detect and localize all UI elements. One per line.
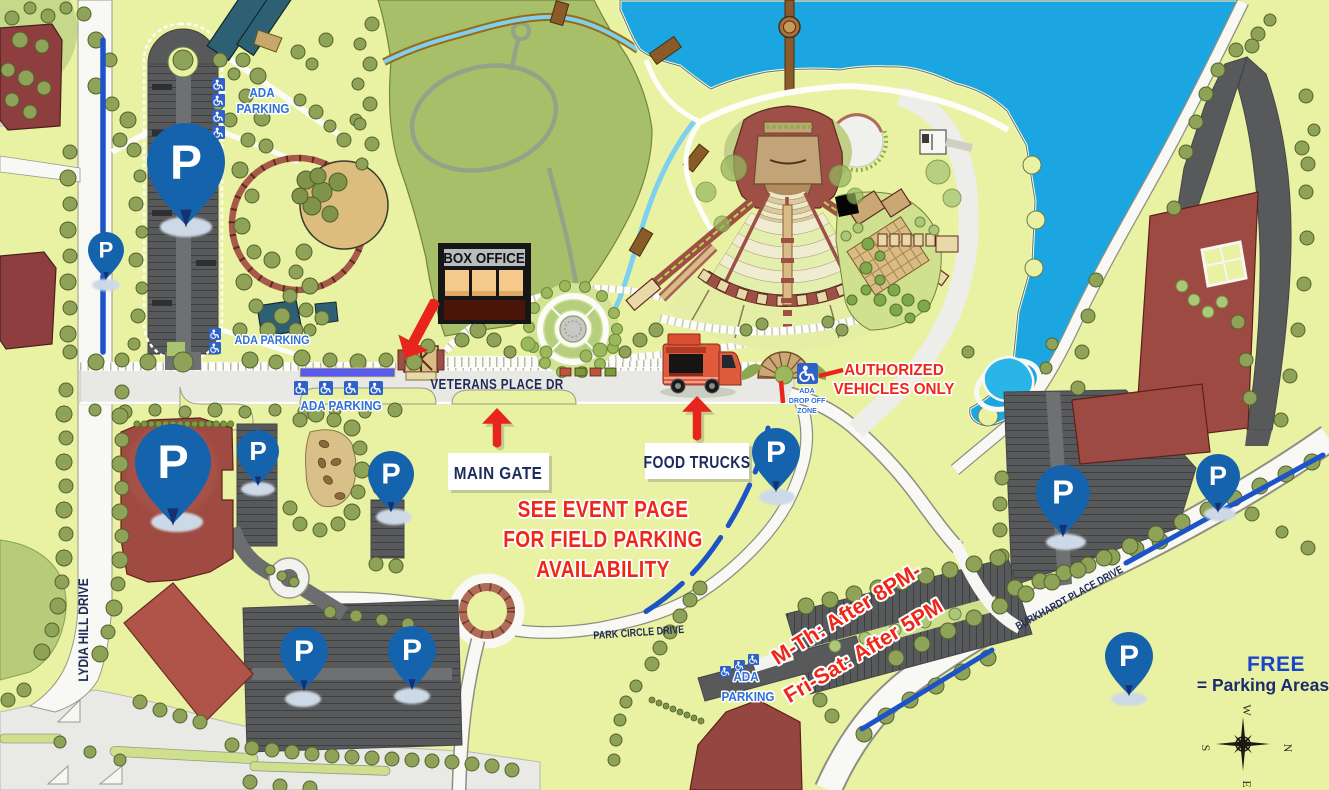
svg-text:E: E: [1240, 780, 1254, 787]
svg-text:ADA PARKING: ADA PARKING: [235, 335, 310, 348]
svg-text:PARKING: PARKING: [721, 689, 774, 704]
svg-text:PARKING: PARKING: [236, 101, 289, 116]
svg-text:P: P: [249, 436, 266, 466]
svg-text:ADA: ADA: [733, 669, 758, 684]
svg-text:LYDIA HILL DRIVE: LYDIA HILL DRIVE: [75, 578, 91, 682]
svg-text:W: W: [1240, 704, 1254, 716]
svg-text:P: P: [1052, 473, 1074, 510]
svg-text:P: P: [766, 436, 786, 469]
svg-text:P: P: [1209, 461, 1227, 491]
svg-text:S: S: [1199, 745, 1213, 752]
svg-text:SEE EVENT PAGE: SEE EVENT PAGE: [518, 497, 689, 522]
svg-text:AVAILABILITY: AVAILABILITY: [536, 557, 670, 582]
svg-text:P: P: [170, 136, 202, 189]
svg-text:ZONE: ZONE: [797, 406, 817, 415]
svg-text:FREE: FREE: [1247, 653, 1305, 676]
svg-text:ADA: ADA: [249, 85, 274, 100]
svg-text:N: N: [1281, 744, 1295, 753]
svg-text:P: P: [294, 635, 314, 668]
svg-text:FOR FIELD PARKING: FOR FIELD PARKING: [503, 527, 703, 552]
svg-text:P: P: [1119, 640, 1139, 673]
svg-text:VETERANS PLACE DR: VETERANS PLACE DR: [430, 376, 563, 393]
svg-text:P: P: [381, 459, 400, 491]
svg-text:FOOD TRUCKS: FOOD TRUCKS: [644, 454, 751, 473]
svg-text:BOX OFFICE: BOX OFFICE: [443, 249, 524, 266]
svg-text:MAIN GATE: MAIN GATE: [454, 463, 542, 483]
svg-text:P: P: [402, 634, 422, 667]
svg-text:ADA: ADA: [799, 386, 815, 395]
svg-text:= Parking Areas: = Parking Areas: [1197, 675, 1329, 695]
svg-text:DROP OFF: DROP OFF: [789, 396, 826, 405]
svg-text:ADA PARKING: ADA PARKING: [300, 398, 381, 413]
svg-text:P: P: [157, 435, 188, 488]
svg-text:P: P: [99, 238, 114, 263]
svg-text:VEHICLES ONLY: VEHICLES ONLY: [834, 381, 956, 398]
svg-text:AUTHORIZED: AUTHORIZED: [844, 362, 944, 379]
